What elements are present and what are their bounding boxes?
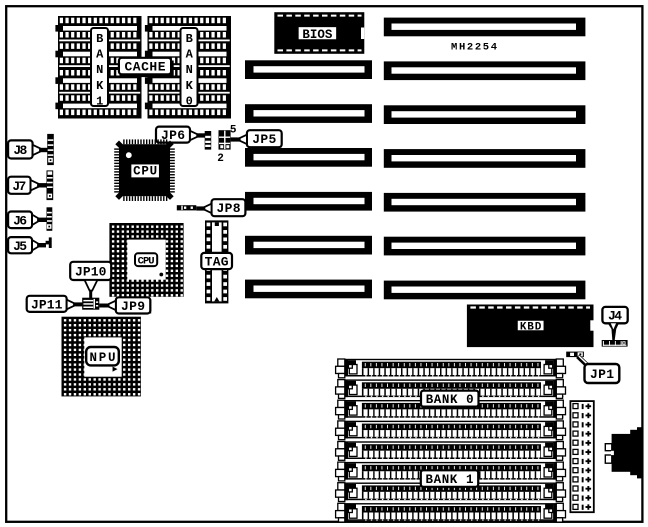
svg-text:J8: J8 — [13, 143, 27, 158]
svg-text:A: A — [186, 48, 194, 62]
svg-text:N: N — [186, 63, 193, 77]
svg-text:CACHE: CACHE — [125, 60, 166, 75]
svg-text:JP9: JP9 — [121, 299, 145, 314]
svg-text:CPU: CPU — [138, 255, 155, 267]
svg-text:JP11: JP11 — [31, 297, 63, 312]
svg-text:0: 0 — [186, 94, 193, 108]
svg-text:JP6: JP6 — [161, 128, 185, 143]
svg-text:BIOS: BIOS — [302, 28, 332, 42]
svg-text:5: 5 — [230, 125, 237, 137]
svg-text:1: 1 — [96, 94, 103, 108]
svg-text:JP10: JP10 — [75, 264, 107, 279]
svg-text:KBD: KBD — [520, 322, 542, 334]
svg-text:BANK 0: BANK 0 — [426, 393, 474, 407]
svg-text:J6: J6 — [13, 213, 27, 228]
svg-text:JP8: JP8 — [217, 201, 241, 216]
svg-text:NPU: NPU — [90, 351, 116, 365]
svg-text:N: N — [96, 63, 103, 77]
svg-text:J7: J7 — [12, 179, 26, 194]
svg-text:B: B — [186, 32, 193, 46]
svg-text:K: K — [186, 79, 194, 93]
svg-text:A: A — [96, 48, 104, 62]
svg-text:J5: J5 — [13, 239, 27, 254]
svg-text:BANK 1: BANK 1 — [426, 473, 474, 487]
svg-text:K: K — [96, 79, 104, 93]
svg-text:J4: J4 — [608, 309, 622, 324]
svg-text:JP1: JP1 — [590, 367, 614, 382]
svg-text:TAG: TAG — [205, 254, 229, 269]
svg-text:2: 2 — [217, 153, 224, 165]
svg-text:CPU: CPU — [133, 165, 157, 179]
svg-text:JP5: JP5 — [252, 132, 276, 147]
svg-text:B: B — [96, 32, 103, 46]
